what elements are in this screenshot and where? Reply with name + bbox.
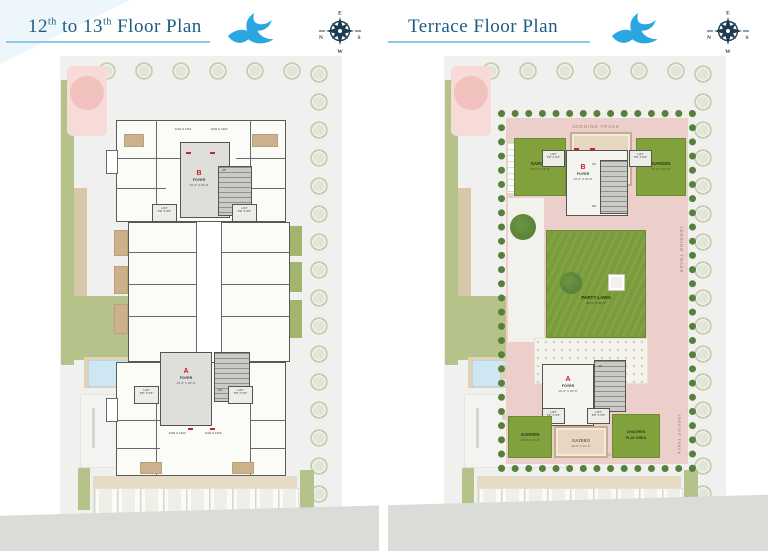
lift-b-right: LIFT5'9" X 6'6"	[629, 150, 652, 167]
gazebo-dim: 22'-0" X 11'-6"	[556, 444, 606, 448]
lift-dim: 5'9" X 6'6"	[634, 155, 648, 159]
tree-column-right	[304, 60, 336, 522]
compass-north-label: N	[707, 35, 711, 41]
panel-floor-plan-12-13: 12th to 13th Floor Plan E S W N	[0, 0, 384, 551]
tower-b-dim: 13'-0" X 20'-6"	[180, 183, 218, 187]
lift-b-left: LIFT5'9" X 6'6"	[542, 150, 565, 167]
door-marker	[188, 428, 193, 430]
wall	[250, 188, 286, 189]
green-strip-bottom-left	[78, 468, 90, 510]
balcony	[114, 304, 128, 334]
balcony	[114, 230, 128, 256]
wall	[250, 420, 286, 421]
wall	[128, 252, 196, 253]
title-sup: th	[103, 17, 112, 28]
compass-east-label: E	[338, 11, 342, 17]
jogging-track-label-right-lower: JOGGING TRACK	[677, 408, 681, 462]
lift-dim: 5'9" X 6'6"	[547, 155, 561, 159]
children-play-line2: PLAY AREA	[613, 436, 659, 442]
stair-dn-label: DN	[592, 204, 596, 208]
lift-a-right: LIFT5'9" X 6'6"	[587, 408, 610, 424]
compass-west-label: W	[337, 49, 343, 54]
corridor	[196, 222, 222, 362]
balcony	[114, 266, 128, 294]
door-marker	[210, 152, 215, 154]
tower-a-label-block: A FOYER 13'-0" X 20'-6"	[160, 368, 212, 385]
title-text: to 13	[57, 16, 103, 37]
jogging-track-label-right: JOGGING TRACK	[679, 212, 684, 288]
compass-south-label: S	[357, 35, 360, 41]
bird-logo-icon	[606, 10, 660, 50]
bay-window	[106, 398, 118, 422]
garden-dim: 17'-6" X 14'-6"	[637, 167, 685, 171]
lift-dim: 5'9" X 6'6"	[234, 391, 248, 395]
balcony	[252, 134, 278, 147]
garden-label: GARDEN 14'-0" X 12'-6"	[509, 432, 551, 442]
door-marker	[186, 152, 191, 154]
title-underline	[384, 41, 590, 43]
stair-up-label: UP	[592, 162, 596, 166]
tower-b-label-block: B FOYER 13'-0" X 20'-6"	[566, 164, 600, 181]
tower-a-label-block: A FOYER 13'-0" X 20'-6"	[542, 376, 594, 393]
garden-bottom-left: GARDEN 14'-0" X 12'-6"	[508, 416, 552, 458]
lift-dim: 5'9" X 6'6"	[238, 209, 252, 213]
planter-strip	[290, 262, 302, 292]
wall	[116, 158, 180, 159]
wall	[250, 448, 286, 449]
tower-b-label-block: B FOYER 13'-0" X 20'-6"	[180, 170, 218, 187]
unit-number: 1201 & 1301	[168, 128, 198, 131]
page-title: Terrace Floor Plan	[408, 16, 558, 38]
wall	[222, 284, 290, 285]
door-marker	[574, 148, 579, 150]
wall	[116, 188, 166, 189]
gazebo-bottom: GAZEBO 22'-0" X 11'-6"	[554, 426, 608, 458]
tower-a-letter: A	[542, 376, 594, 384]
wall	[236, 158, 286, 159]
tree-row-top	[92, 57, 310, 84]
compass-rose-icon: E S W N	[706, 8, 750, 54]
tower-b-dim: 13'-0" X 20'-6"	[566, 177, 600, 181]
staircase-b	[600, 160, 628, 214]
wall	[116, 448, 160, 449]
balcony	[140, 462, 162, 474]
pathway	[458, 188, 471, 300]
shrub	[560, 272, 582, 294]
pathway	[74, 188, 87, 300]
title-text: 12	[28, 16, 48, 37]
stair-up-label: UP	[598, 364, 602, 368]
party-lawn-dim: 31'-6" X 35'-0"	[547, 301, 645, 305]
parking-canopy	[93, 476, 297, 488]
title-text: Terrace Floor Plan	[408, 16, 558, 37]
wall	[128, 316, 196, 317]
compass-west-label: W	[725, 49, 731, 54]
bay-window	[106, 150, 118, 174]
entry-feature-circle	[70, 76, 104, 110]
lift-dim: 5'9" X 6'6"	[140, 391, 154, 395]
play-equipment	[476, 408, 479, 448]
title-text: Floor Plan	[112, 16, 202, 37]
parking-canopy	[477, 476, 681, 488]
garden-top-left: GARDEN 22'-6" X 14'-6"	[514, 138, 566, 196]
balcony	[124, 134, 144, 147]
lift-dim: 5'9" X 6'6"	[592, 413, 606, 417]
page-title: 12th to 13th Floor Plan	[28, 16, 202, 38]
compass-south-label: S	[745, 35, 748, 41]
stair-up-label: UP	[222, 168, 226, 172]
planter-strip	[290, 226, 302, 256]
entry-feature-circle	[454, 76, 488, 110]
tower-a-dim: 13'-0" X 20'-6"	[542, 389, 594, 393]
tower-a-dim: 13'-0" X 20'-6"	[160, 381, 212, 385]
shrub	[510, 214, 536, 240]
panel-divider	[379, 0, 388, 551]
door-marker	[210, 428, 215, 430]
wall	[116, 420, 160, 421]
stair-dn-label: DN	[218, 388, 222, 392]
brochure-page: 12th to 13th Floor Plan E S W N	[0, 0, 768, 551]
wall	[222, 316, 290, 317]
lift-b-left: LIFT5'9" X 6'6"	[152, 204, 177, 222]
unit-number: 1204 & 1304	[198, 432, 228, 435]
lift-dim: 5'9" X 6'6"	[158, 209, 172, 213]
tower-a-letter: A	[160, 368, 212, 376]
planter-strip	[290, 300, 302, 338]
compass-north-label: N	[319, 35, 323, 41]
title-underline	[6, 41, 210, 43]
party-lawn-label: PARTY LAWN 31'-6" X 35'-0"	[547, 295, 645, 305]
garden-top-right: GARDEN 17'-6" X 14'-6"	[636, 138, 686, 196]
lift-b-right: LIFT5'9" X 6'6"	[232, 204, 257, 222]
unit-number: 1203 & 1303	[162, 432, 192, 435]
garden-dim: 14'-0" X 12'-6"	[509, 438, 551, 442]
gazebo-label: GAZEBO 22'-0" X 11'-6"	[556, 438, 606, 448]
jogging-track-label-top: JOGGING TRACK	[534, 124, 658, 129]
compass-east-label: E	[726, 11, 730, 17]
compass-rose-icon: E S W N	[318, 8, 362, 54]
children-play-label: CHILDREN PLAY AREA	[613, 430, 659, 441]
door-marker	[590, 148, 595, 150]
tree-row-top	[476, 57, 694, 84]
wall	[222, 252, 290, 253]
lift-a-right: LIFT5'9" X 6'6"	[228, 386, 253, 404]
lift-a-left: LIFT5'9" X 6'6"	[134, 386, 159, 404]
tower-a-core	[160, 352, 212, 426]
wall	[128, 284, 196, 285]
play-equipment	[92, 408, 95, 448]
tower-b-letter: B	[180, 170, 218, 178]
bird-logo-icon	[222, 10, 276, 50]
children-play-area: CHILDREN PLAY AREA	[612, 414, 660, 458]
lawn-feature	[608, 274, 625, 291]
garden-dim: 22'-6" X 14'-6"	[515, 167, 565, 171]
panel-terrace-plan: Terrace Floor Plan E S W N	[384, 0, 768, 551]
unit-number: 1202 & 1302	[204, 128, 234, 131]
balcony	[232, 462, 254, 474]
title-sup: th	[48, 17, 57, 28]
